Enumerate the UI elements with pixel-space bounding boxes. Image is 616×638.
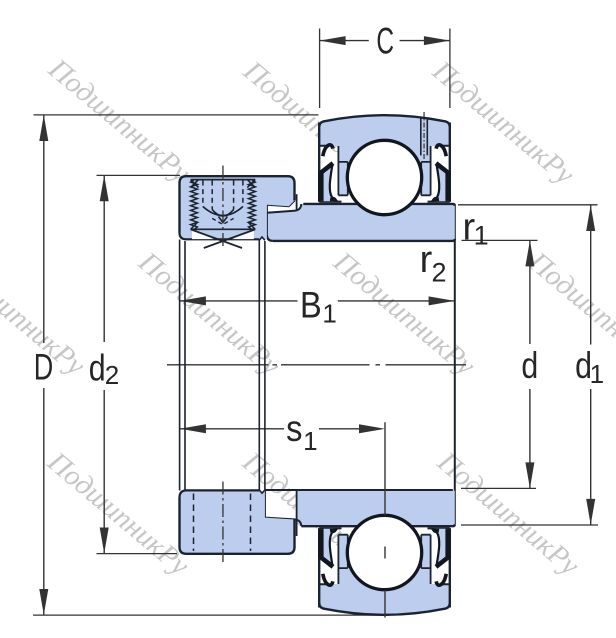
svg-text:2: 2 <box>431 257 446 287</box>
svg-text:1: 1 <box>322 299 336 329</box>
svg-text:D: D <box>34 346 54 387</box>
svg-text:d: d <box>89 348 106 390</box>
svg-text:1: 1 <box>303 426 317 456</box>
svg-text:C: C <box>376 20 394 61</box>
svg-text:1: 1 <box>474 221 489 251</box>
svg-text:s: s <box>286 408 302 449</box>
svg-text:B: B <box>300 284 322 325</box>
svg-text:2: 2 <box>105 360 119 390</box>
svg-text:1: 1 <box>590 359 604 389</box>
svg-text:d: d <box>521 345 538 387</box>
